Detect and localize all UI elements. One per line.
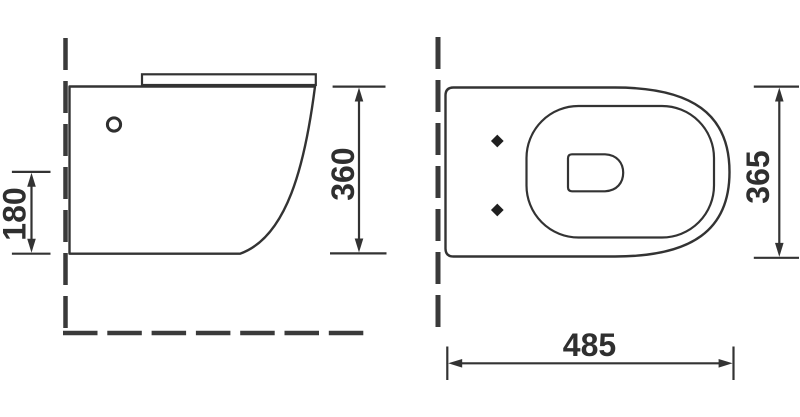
svg-text:485: 485 [563, 327, 616, 363]
svg-text:180: 180 [0, 187, 32, 240]
svg-text:365: 365 [740, 150, 776, 203]
svg-text:360: 360 [325, 147, 361, 200]
